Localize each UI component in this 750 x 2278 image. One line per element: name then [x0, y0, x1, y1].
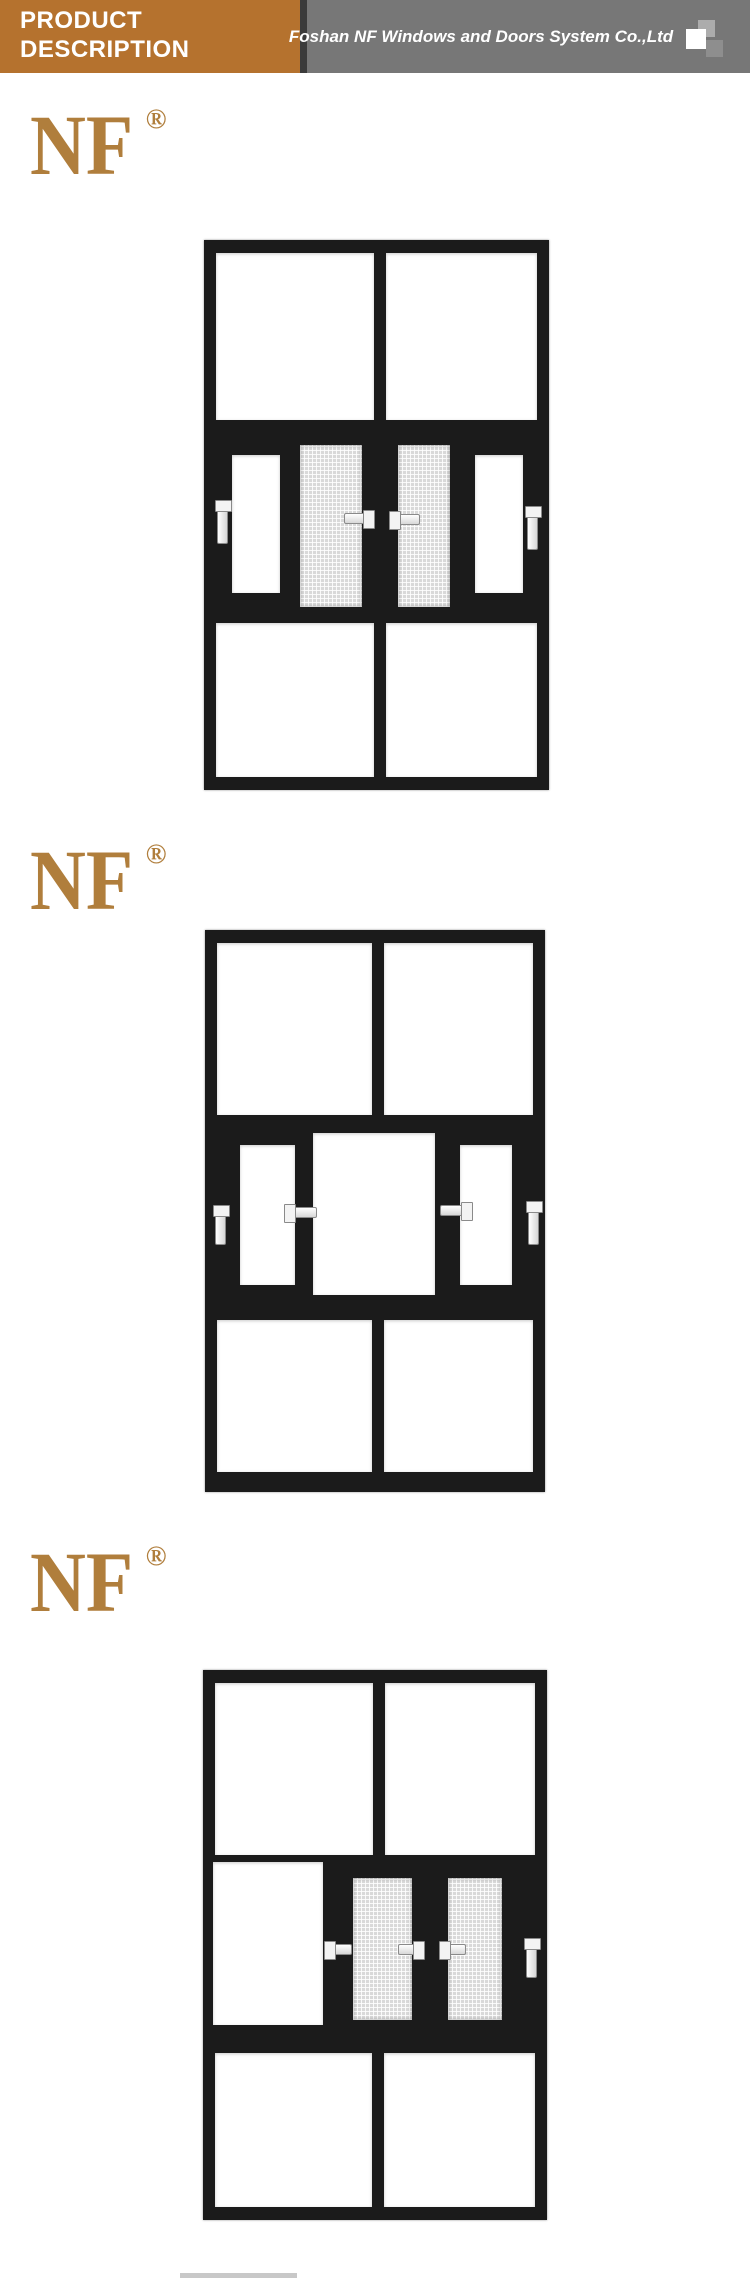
squares-logo-icon: [686, 20, 726, 60]
nf-logo-text: NF: [30, 1539, 133, 1625]
square-dark-gray: [706, 40, 723, 57]
window-handle: [285, 1207, 317, 1218]
banner-title: PRODUCT DESCRIPTION: [20, 6, 190, 64]
product-description-banner: PRODUCT DESCRIPTION: [0, 0, 300, 73]
partial-next-image: [180, 2273, 297, 2278]
casement-glass: [232, 455, 280, 593]
mesh-screen: [398, 445, 450, 607]
window-handle: [215, 1207, 226, 1245]
window-figure-1: [204, 240, 549, 790]
glass-pane: [217, 1320, 372, 1472]
glass-pane: [215, 1683, 373, 1855]
window-handle: [398, 1944, 424, 1955]
window-handle: [440, 1205, 472, 1216]
open-glass-pane: [213, 1862, 323, 2025]
registered-trademark-icon: ®: [146, 1541, 167, 1572]
glass-pane: [384, 2053, 535, 2207]
window-figure-2: [205, 930, 545, 1492]
glass-pane: [215, 2053, 372, 2207]
banner-title-line2: DESCRIPTION: [20, 35, 190, 64]
window-handle: [527, 508, 538, 550]
mesh-screen: [300, 445, 362, 607]
registered-trademark-icon: ®: [146, 104, 167, 135]
company-bar: Foshan NF Windows and Doors System Co.,L…: [307, 0, 750, 73]
glass-pane: [216, 623, 374, 777]
banner-title-line1: PRODUCT: [20, 6, 190, 35]
glass-pane: [384, 943, 533, 1115]
nf-brand-logo-1: NF®: [30, 102, 167, 188]
glass-pane: [386, 253, 537, 420]
fixed-center-pane: [313, 1133, 435, 1295]
nf-logo-text: NF: [30, 837, 133, 923]
nf-logo-text: NF: [30, 102, 133, 188]
glass-pane: [216, 253, 374, 420]
nf-brand-logo-2: NF®: [30, 837, 167, 923]
window-handle: [440, 1944, 466, 1955]
nf-brand-logo-3: NF®: [30, 1539, 167, 1625]
registered-trademark-icon: ®: [146, 839, 167, 870]
window-handle: [528, 1203, 539, 1245]
glass-pane: [217, 943, 372, 1115]
window-handle: [390, 514, 420, 525]
square-white: [686, 29, 706, 49]
casement-glass: [475, 455, 523, 593]
glass-pane: [384, 1320, 533, 1472]
window-figure-3: [203, 1670, 547, 2220]
window-handle: [325, 1944, 352, 1955]
glass-pane: [386, 623, 537, 777]
company-name: Foshan NF Windows and Doors System Co.,L…: [322, 0, 640, 73]
page: PRODUCT DESCRIPTION Foshan NF Windows an…: [0, 0, 750, 2278]
window-handle: [526, 1940, 537, 1978]
glass-pane: [385, 1683, 535, 1855]
window-handle: [217, 502, 228, 544]
window-handle: [344, 513, 374, 524]
